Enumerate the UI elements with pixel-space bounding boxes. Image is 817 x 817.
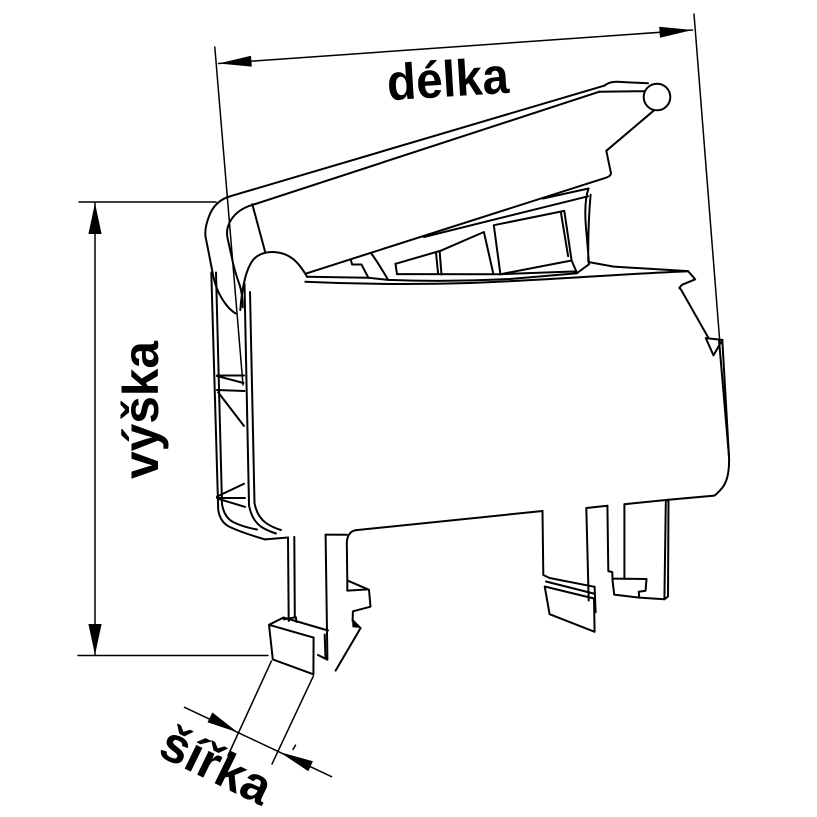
svg-text:délka: délka [385,47,511,111]
svg-text:výška: výška [113,340,169,479]
